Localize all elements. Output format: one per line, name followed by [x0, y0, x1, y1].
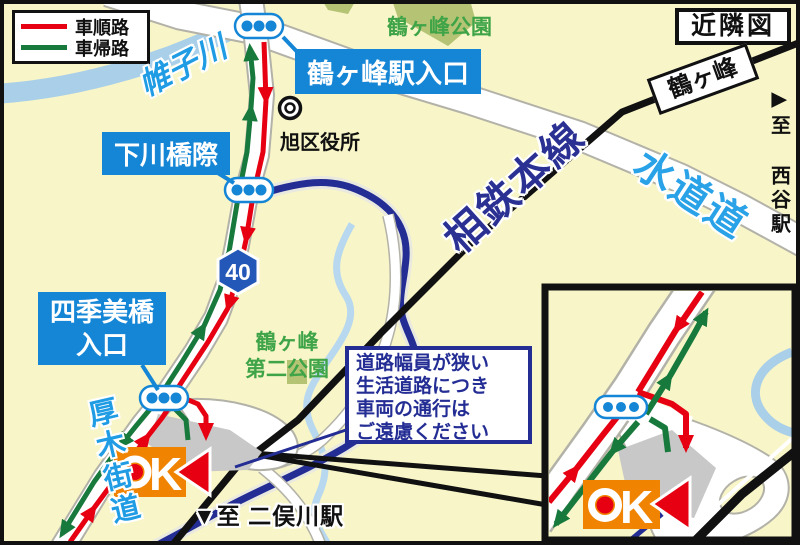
notice-box: 道路幅員が狭い 生活道路につき 車両の通行は ご遠慮ください: [345, 346, 532, 444]
nishiya-label: 至 西谷駅: [765, 115, 794, 237]
signal-shikimibashi: [140, 386, 188, 410]
legend-green-line-swatch: [21, 45, 67, 50]
nishiya-arrow-icon: ▶: [764, 88, 794, 111]
legend-red-line-swatch: [21, 24, 67, 29]
notice-line3: 車両の通行は: [356, 398, 528, 421]
label-tsurugamine-station-entrance: 鶴ヶ峰駅入口: [295, 49, 481, 94]
signal-tsurugamine-station-entrance: [235, 14, 283, 38]
direction-nishiya: ▶ 至 西谷駅: [764, 88, 794, 237]
direction-futamatagawa: ▼至 二俣川駅: [193, 497, 344, 531]
label-shikimibashi: 四季美橋 入口: [38, 292, 166, 365]
legend-return-label: 車帰路: [75, 35, 129, 61]
notice-line1: 道路幅員が狭い: [356, 352, 528, 375]
label-shikimibashi-line1: 四季美橋: [38, 296, 166, 329]
label-ward-office: 旭区役所: [280, 126, 360, 155]
map-title: 近隣図: [675, 8, 791, 45]
legend: 車順路 車帰路: [12, 10, 150, 64]
label-shimokawabashi: 下川橋際: [102, 132, 230, 175]
inset-map: K: [536, 278, 800, 545]
notice-line2: 生活道路につき: [356, 375, 528, 398]
inset-signal: [595, 396, 647, 418]
notice-line4: ご遠慮ください: [356, 421, 528, 444]
label-park1: 鶴ヶ峰公園: [387, 11, 492, 41]
ward-office-icon: [280, 98, 301, 119]
route-40-badge: 40: [218, 248, 258, 294]
label-park2-line2: 第二公園: [226, 356, 348, 383]
label-shikimibashi-line2: 入口: [38, 329, 166, 362]
label-park2-line1: 鶴ヶ峰: [226, 329, 348, 356]
legend-row-return: 車帰路: [21, 37, 141, 58]
inset-ok-logo-k-letter: K: [620, 481, 653, 533]
label-park2: 鶴ヶ峰 第二公園: [226, 329, 348, 384]
route-number: 40: [225, 259, 251, 285]
access-map: K 40: [0, 0, 800, 545]
